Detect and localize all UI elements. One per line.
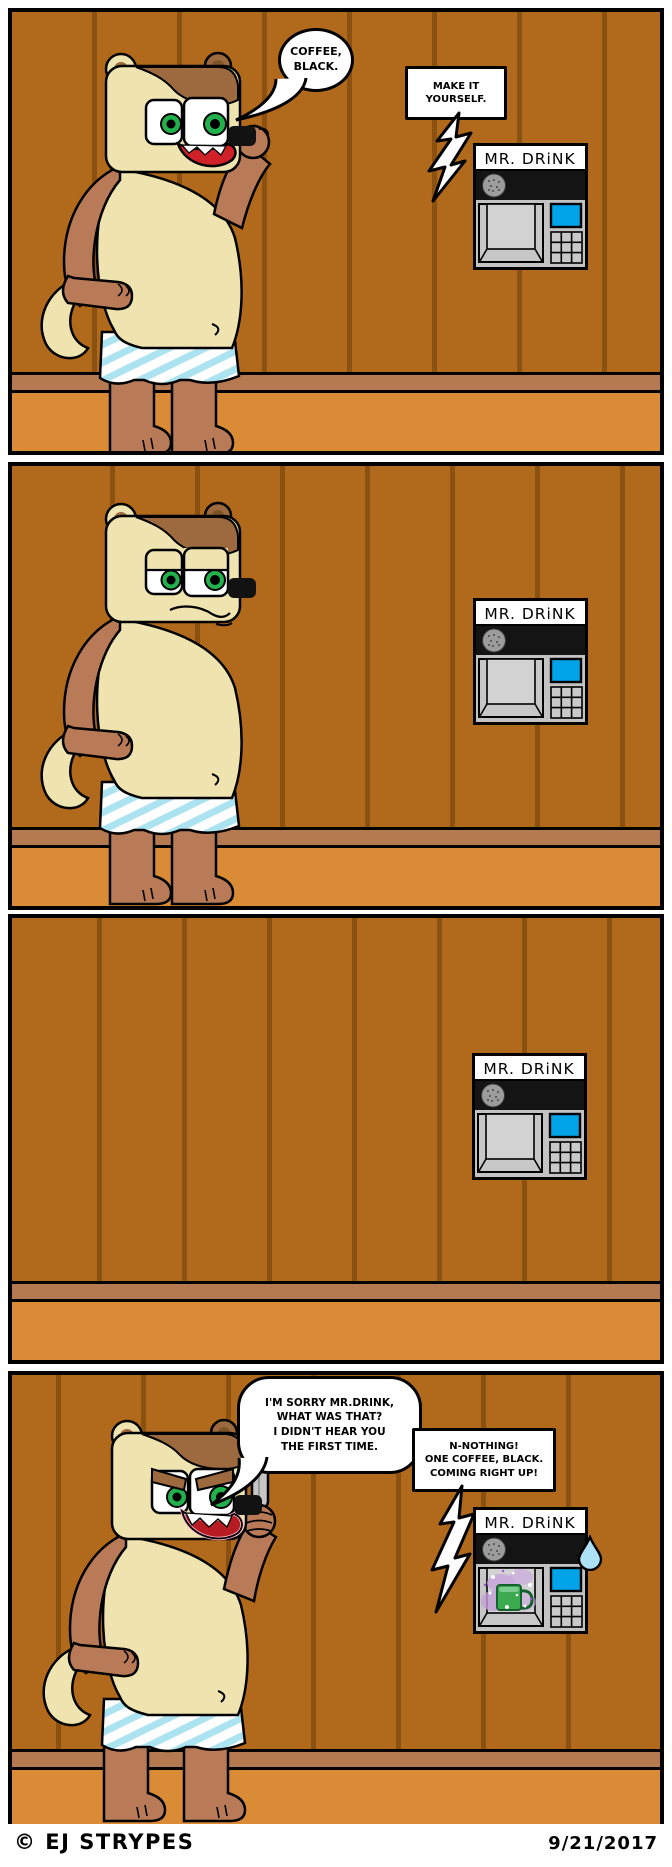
speaker-icon — [483, 629, 506, 652]
dispenser-chamber — [478, 1114, 542, 1172]
comic-panel-2: MR. DRiNK — [8, 462, 664, 910]
speech-text: I'M SORRY MR.DRINK, WHAT WAS THAT? I DID… — [265, 1396, 394, 1455]
speech-text: N-NOTHING! ONE COFFEE, BLACK. COMING RIG… — [425, 1440, 543, 1481]
mr-drink-machine: MR. DRiNK — [472, 1053, 587, 1180]
footer: © EJ STRYPES 9/21/2017 — [0, 1824, 672, 1867]
speaker-icon — [482, 1084, 505, 1107]
dispenser-chamber — [479, 1568, 543, 1626]
dispenser-chamber — [479, 659, 543, 717]
machine-screen — [551, 204, 581, 227]
machine-label: MR. DRiNK — [484, 605, 575, 623]
dispenser-chamber — [479, 204, 543, 262]
baseboard — [12, 1281, 660, 1302]
comic-date: 9/21/2017 — [548, 1833, 658, 1854]
machine-label: MR. DRiNK — [484, 150, 575, 168]
speech-text: COFFEE, BLACK. — [290, 45, 342, 75]
comic-panel-4: MR. DRiNK — [8, 1371, 664, 1832]
bear-nose — [228, 126, 256, 146]
bear-teeth — [186, 1513, 232, 1527]
mr-drink-machine: MR. DRiNK — [473, 143, 588, 270]
comic-page: MR. DRiNK COFFEE, B — [0, 0, 672, 1867]
machine-screen — [551, 659, 581, 682]
mr-drink-machine: MR. DRiNK — [473, 1507, 588, 1634]
speaker-icon — [483, 174, 506, 197]
machine-screen — [550, 1114, 580, 1137]
bear-teeth — [182, 145, 226, 155]
bear-belly — [103, 1535, 248, 1715]
mr-drink-machine: MR. DRiNK — [473, 598, 588, 725]
comic-panel-1: MR. DRiNK COFFEE, B — [8, 8, 664, 455]
speech-bubble-tail — [205, 1453, 275, 1511]
lightning-tail-icon — [423, 111, 483, 205]
speech-bubble-tail — [226, 74, 314, 126]
machine-label: MR. DRiNK — [484, 1514, 575, 1532]
speech-box-machine: N-NOTHING! ONE COFFEE, BLACK. COMING RIG… — [412, 1428, 556, 1492]
sweat-drop-icon — [576, 1535, 604, 1571]
bear-belly — [97, 618, 242, 798]
floor — [12, 1302, 660, 1360]
bear-nose — [228, 578, 256, 598]
machine-keypad — [551, 1596, 582, 1627]
comic-panel-3: MR. DRiNK — [8, 914, 664, 1364]
speech-text: MAKE IT YOURSELF. — [426, 80, 487, 107]
lightning-tail-icon — [428, 1484, 488, 1616]
bear-character — [22, 492, 272, 910]
artist-credit: © EJ STRYPES — [14, 1830, 194, 1854]
bear-head — [106, 503, 256, 625]
machine-keypad — [551, 687, 582, 718]
machine-keypad — [550, 1142, 581, 1173]
machine-screen — [551, 1568, 581, 1591]
machine-keypad — [551, 232, 582, 263]
machine-label: MR. DRiNK — [483, 1060, 574, 1078]
